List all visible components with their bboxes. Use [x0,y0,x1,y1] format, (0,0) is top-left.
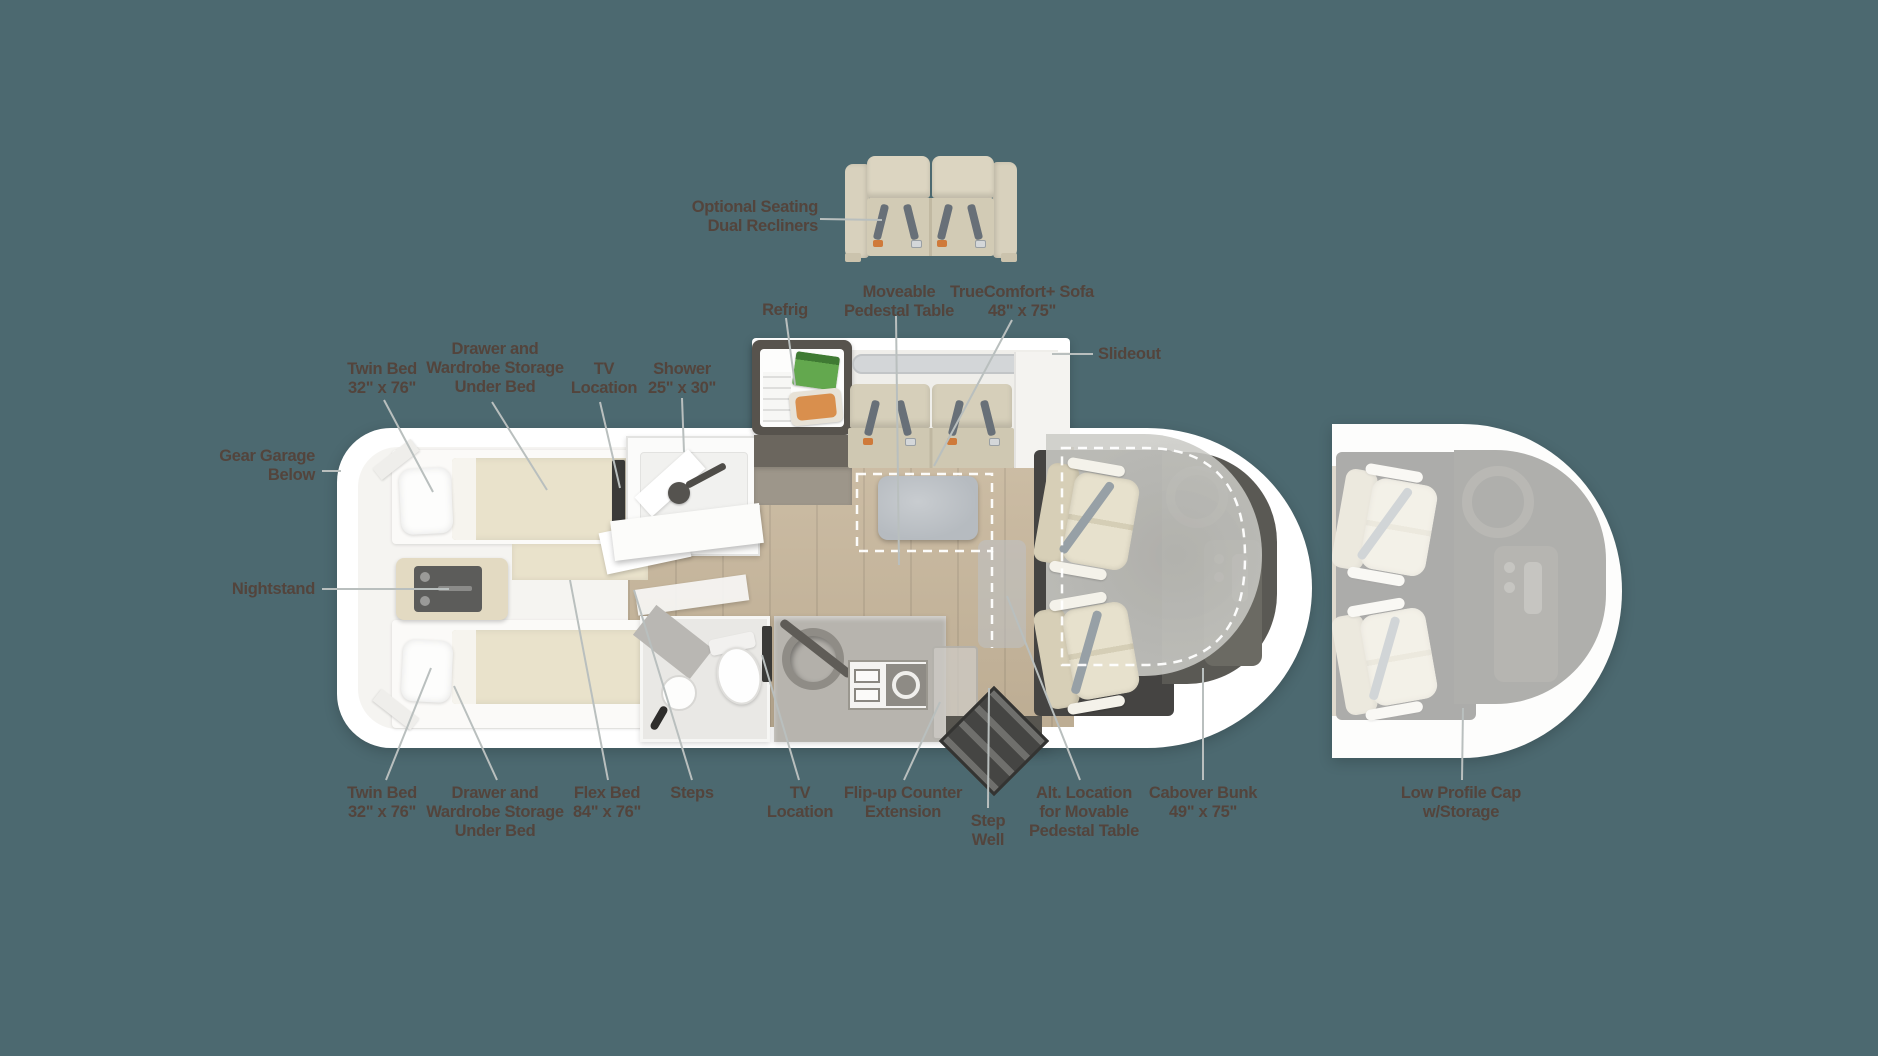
label-step-well: Step Well [971,812,1006,850]
cab-seat-passenger [1031,586,1158,719]
ghost-cab-seat [1332,592,1455,725]
round-burner [892,671,920,699]
seatbelt-latch [975,240,986,248]
label-nightstand: Nightstand [232,580,315,599]
cab-seat-driver [1031,454,1158,587]
label-twin-bed-top: Twin Bed 32" x 76" [347,360,417,398]
alt-table-location-ghost [978,540,1026,648]
toilet [706,631,770,712]
bathroom-angled-wall [633,605,713,679]
label-optional-seating: Optional Seating Dual Recliners [692,198,818,236]
bed-pillow [398,467,453,536]
nightstand-handle [438,586,472,591]
moveable-pedestal-table [878,476,978,540]
ghost-cab-seat [1332,460,1455,593]
bathroom [640,616,770,742]
cooktop [848,660,928,710]
sofa-armrest-left [845,164,869,258]
ghost-steering-wheel-icon [1462,466,1534,538]
kitchen-counter [774,616,946,742]
galley-counter-dark [754,435,852,467]
bed-pillow [400,639,453,704]
food-bag [788,387,843,426]
slideout-window [852,354,1024,374]
refrigerator [752,340,852,435]
food-bag-contents [795,393,837,421]
ghost-dashboard [1454,450,1606,704]
tv-bottom [762,626,772,682]
label-shower: Shower 25" x 30" [648,360,716,398]
nightstand [396,558,508,620]
console-screen [1524,562,1542,614]
ghost-center-console [1494,546,1558,682]
label-refrig: Refrig [762,301,808,320]
cooktop-burner-grate [854,669,880,683]
sofa-back-cushion [932,384,1012,428]
bed-sheet-fold [452,630,476,704]
sofa-foot [1001,253,1017,262]
seatbelt-buckle [947,438,957,445]
console-knob [1504,562,1515,573]
seatbelt-latch [911,240,922,248]
label-alt-table-location: Alt. Location for Movable Pedestal Table [1029,784,1139,841]
low-profile-cap [1332,424,1622,758]
seat-cushion [1060,470,1141,572]
refrigerator-door-shelves [763,372,791,422]
seatbelt-latch [989,438,1000,446]
label-twin-bed-bottom: Twin Bed 32" x 76" [347,784,417,822]
cooktop-burner-grate [854,688,880,702]
label-slideout: Slideout [1098,345,1161,364]
bed-sheet-fold [452,458,476,540]
cap-ghost-interior [1332,424,1622,758]
nightstand-knob [420,572,430,582]
seatbelt-buckle [937,240,947,247]
label-flip-up-counter: Flip-up Counter Extension [844,784,962,822]
sofa-back-cushion [867,156,930,198]
label-flex-bed: Flex Bed 84" x 76" [573,784,641,822]
toilet-brush [649,705,669,732]
optional-recliner-sofa [845,150,1017,262]
bathroom-sink [661,675,697,711]
label-drawer-wardrobe-bottom: Drawer and Wardrobe Storage Under Bed [426,784,564,841]
sofa-armrest-right [993,162,1017,258]
sofa-foot [845,253,861,262]
sofa-back-cushion [932,156,994,198]
label-gear-garage: Gear Garage Below [219,447,315,485]
seatbelt-buckle [863,438,873,445]
label-truecomfort-sofa: TrueComfort+ Sofa 48" x 75" [950,283,1094,321]
nightstand-knob [420,596,430,606]
label-low-profile-cap: Low Profile Cap w/Storage [1401,784,1521,822]
food-package-green [792,351,840,391]
label-steps: Steps [670,784,713,803]
rv-floorplan-canvas: Optional Seating Dual Recliners Refrig M… [0,0,1878,1056]
sofa-back-cushion [850,384,930,428]
seatbelt-buckle [873,240,883,247]
label-moveable-pedestal-table: Moveable Pedestal Table [844,283,954,321]
seatbelt-latch [905,438,916,446]
galley-cabinet [754,467,852,505]
console-knob [1504,582,1515,593]
label-tv-location-top: TV Location [571,360,637,398]
cooktop-right-panel [886,664,926,706]
label-drawer-wardrobe-top: Drawer and Wardrobe Storage Under Bed [426,340,564,397]
label-cabover-bunk: Cabover Bunk 49" x 75" [1149,784,1257,822]
label-tv-location-bottom: TV Location [767,784,833,822]
